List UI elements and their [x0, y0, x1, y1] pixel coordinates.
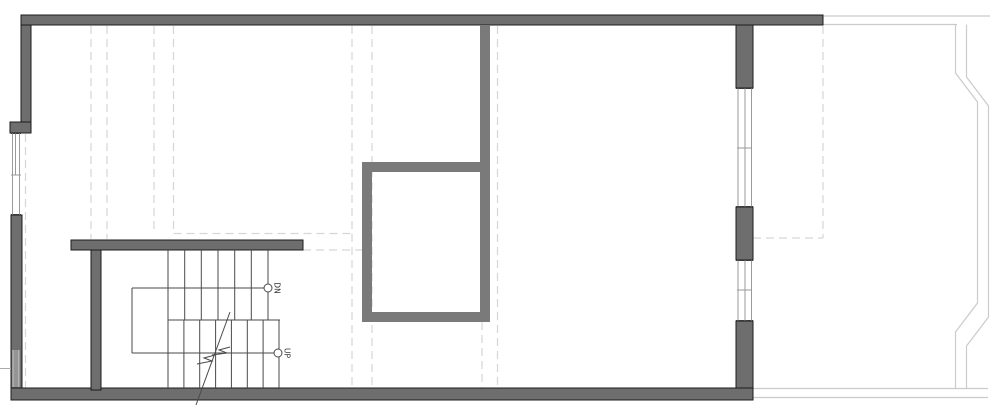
stair-down-marker	[264, 284, 272, 292]
shaft-wall-right	[480, 172, 490, 312]
interior-shaft	[362, 25, 490, 322]
windows	[0, 88, 753, 387]
left-wall-jog	[10, 122, 31, 133]
stair-up-label: UP	[283, 348, 292, 358]
interior-wall-from-top	[480, 25, 490, 162]
left-wall-upper	[21, 25, 31, 123]
staircase	[71, 240, 303, 405]
stair-wall-vertical	[91, 250, 101, 390]
stair-up-marker	[274, 349, 282, 357]
floor-plan-drawing: DN UP	[0, 0, 1000, 416]
right-wall-top	[736, 25, 753, 88]
overhead-dashed-lines	[26, 26, 824, 390]
deck-railing-inner	[956, 25, 978, 389]
shaft-wall-bottom	[362, 312, 490, 322]
shaft-wall-top	[362, 162, 490, 172]
stair-wall-horizontal	[71, 240, 303, 250]
shaft-wall-left	[362, 172, 372, 312]
right-wall-bottom	[736, 321, 753, 388]
stair-down-label: DN	[273, 282, 282, 293]
floor-plan-canvas: DN UP	[0, 0, 1000, 416]
deck-outline	[753, 16, 990, 398]
bottom-wall	[11, 388, 753, 400]
top-wall	[21, 15, 823, 25]
right-wall-middle	[736, 207, 753, 260]
